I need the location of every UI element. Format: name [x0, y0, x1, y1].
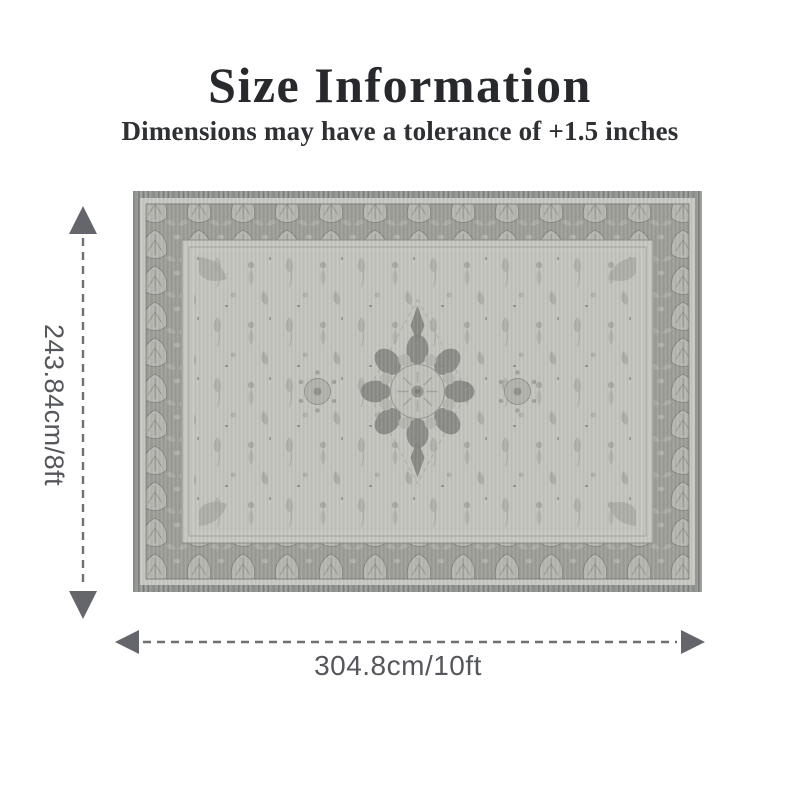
arrow-right-icon: [681, 630, 705, 654]
size-information-page: Size Information Dimensions may have a t…: [0, 0, 800, 800]
width-dimension-label: 304.8cm/10ft: [248, 650, 548, 682]
arrow-left-icon: [115, 630, 139, 654]
tolerance-note: Dimensions may have a tolerance of +1.5 …: [0, 116, 800, 147]
rug-image: [133, 191, 702, 592]
page-title: Size Information: [0, 58, 800, 113]
arrow-up-icon: [69, 206, 97, 234]
height-dimension-label: 243.84cm/8ft: [40, 324, 67, 486]
arrow-down-icon: [69, 591, 97, 619]
rug-illustration: [133, 191, 702, 592]
